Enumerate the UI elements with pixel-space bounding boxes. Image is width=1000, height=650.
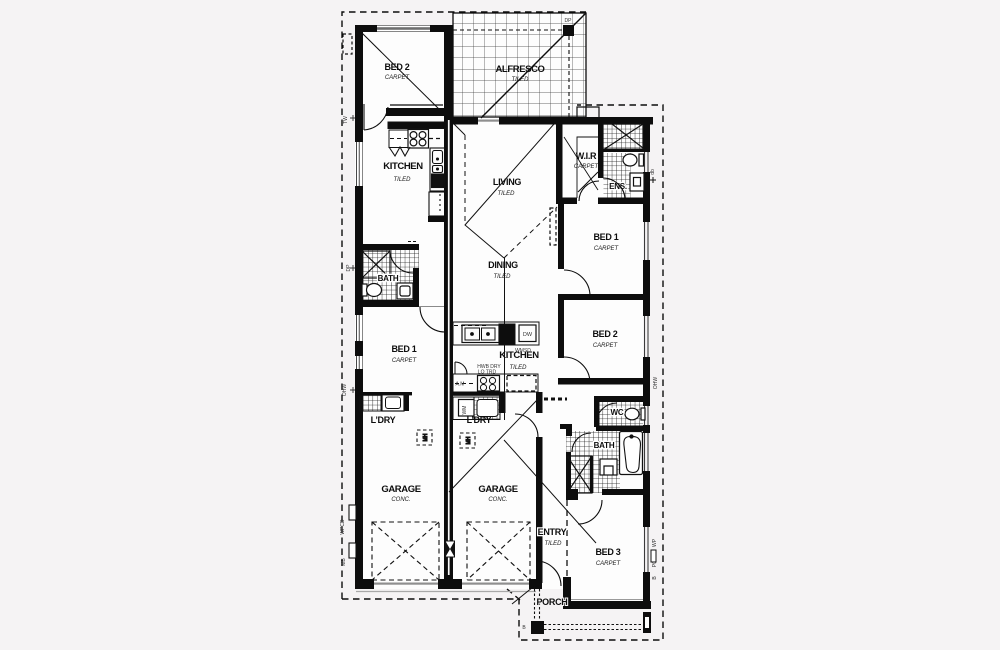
svg-text:PORCH: PORCH xyxy=(536,597,567,607)
svg-text:L’DRY: L’DRY xyxy=(467,415,492,425)
svg-text:CONC.: CONC. xyxy=(391,497,410,503)
svg-text:TILED: TILED xyxy=(509,365,527,371)
svg-text:db: db xyxy=(650,169,656,175)
svg-text:CARPET: CARPET xyxy=(596,561,622,567)
svg-text:MH: MH xyxy=(466,436,472,444)
svg-text:MB: MB xyxy=(341,558,347,566)
svg-text:TILED: TILED xyxy=(544,541,562,547)
svg-text:A.M: A.M xyxy=(456,382,465,388)
svg-text:MH: MH xyxy=(423,433,429,441)
svg-text:DP: DP xyxy=(346,264,352,272)
svg-text:BED 2: BED 2 xyxy=(384,62,409,72)
svg-text:TW: TW xyxy=(343,116,349,124)
svg-text:BED 2: BED 2 xyxy=(592,329,617,339)
svg-text:BATH: BATH xyxy=(378,274,399,283)
svg-text:CARPET: CARPET xyxy=(385,75,411,81)
svg-text:ENTRY: ENTRY xyxy=(538,527,567,537)
svg-text:GARAGE: GARAGE xyxy=(478,484,517,495)
svg-text:CARPET: CARPET xyxy=(593,343,619,349)
svg-text:ALFRESCO: ALFRESCO xyxy=(495,64,544,75)
svg-text:GARAGE: GARAGE xyxy=(381,484,420,495)
svg-text:OHW: OHW xyxy=(342,384,348,397)
svg-text:TILED: TILED xyxy=(511,77,529,83)
svg-text:CARPET: CARPET xyxy=(392,358,418,364)
svg-text:CARPET: CARPET xyxy=(594,246,620,252)
svg-text:OHW: OHW xyxy=(653,377,659,390)
svg-text:DW: DW xyxy=(523,332,533,338)
svg-text:L’DRY: L’DRY xyxy=(371,415,396,425)
svg-text:CARPET: CARPET xyxy=(574,164,600,170)
svg-text:WM: WM xyxy=(462,406,468,415)
svg-text:LO TRD: LO TRD xyxy=(478,370,497,376)
svg-text:KITCHEN: KITCHEN xyxy=(499,350,539,361)
svg-text:DINING: DINING xyxy=(488,260,518,270)
svg-text:WC: WC xyxy=(611,408,624,417)
svg-text:TILED: TILED xyxy=(493,274,511,280)
svg-text:BED 3: BED 3 xyxy=(595,547,620,557)
svg-text:BATH: BATH xyxy=(594,441,615,450)
svg-text:WPCD: WPCD xyxy=(340,519,346,535)
svg-text:TILED: TILED xyxy=(393,177,411,183)
svg-text:W.I.R: W.I.R xyxy=(576,151,597,161)
svg-text:BED 1: BED 1 xyxy=(391,344,416,354)
svg-text:WP: WP xyxy=(652,538,658,547)
svg-text:BED 1: BED 1 xyxy=(593,232,618,242)
svg-text:TILED: TILED xyxy=(497,191,515,197)
svg-text:CONC.: CONC. xyxy=(488,497,507,503)
svg-text:DP: DP xyxy=(565,18,573,24)
svg-text:LIVING: LIVING xyxy=(493,177,522,187)
svg-text:KITCHEN: KITCHEN xyxy=(383,161,423,172)
